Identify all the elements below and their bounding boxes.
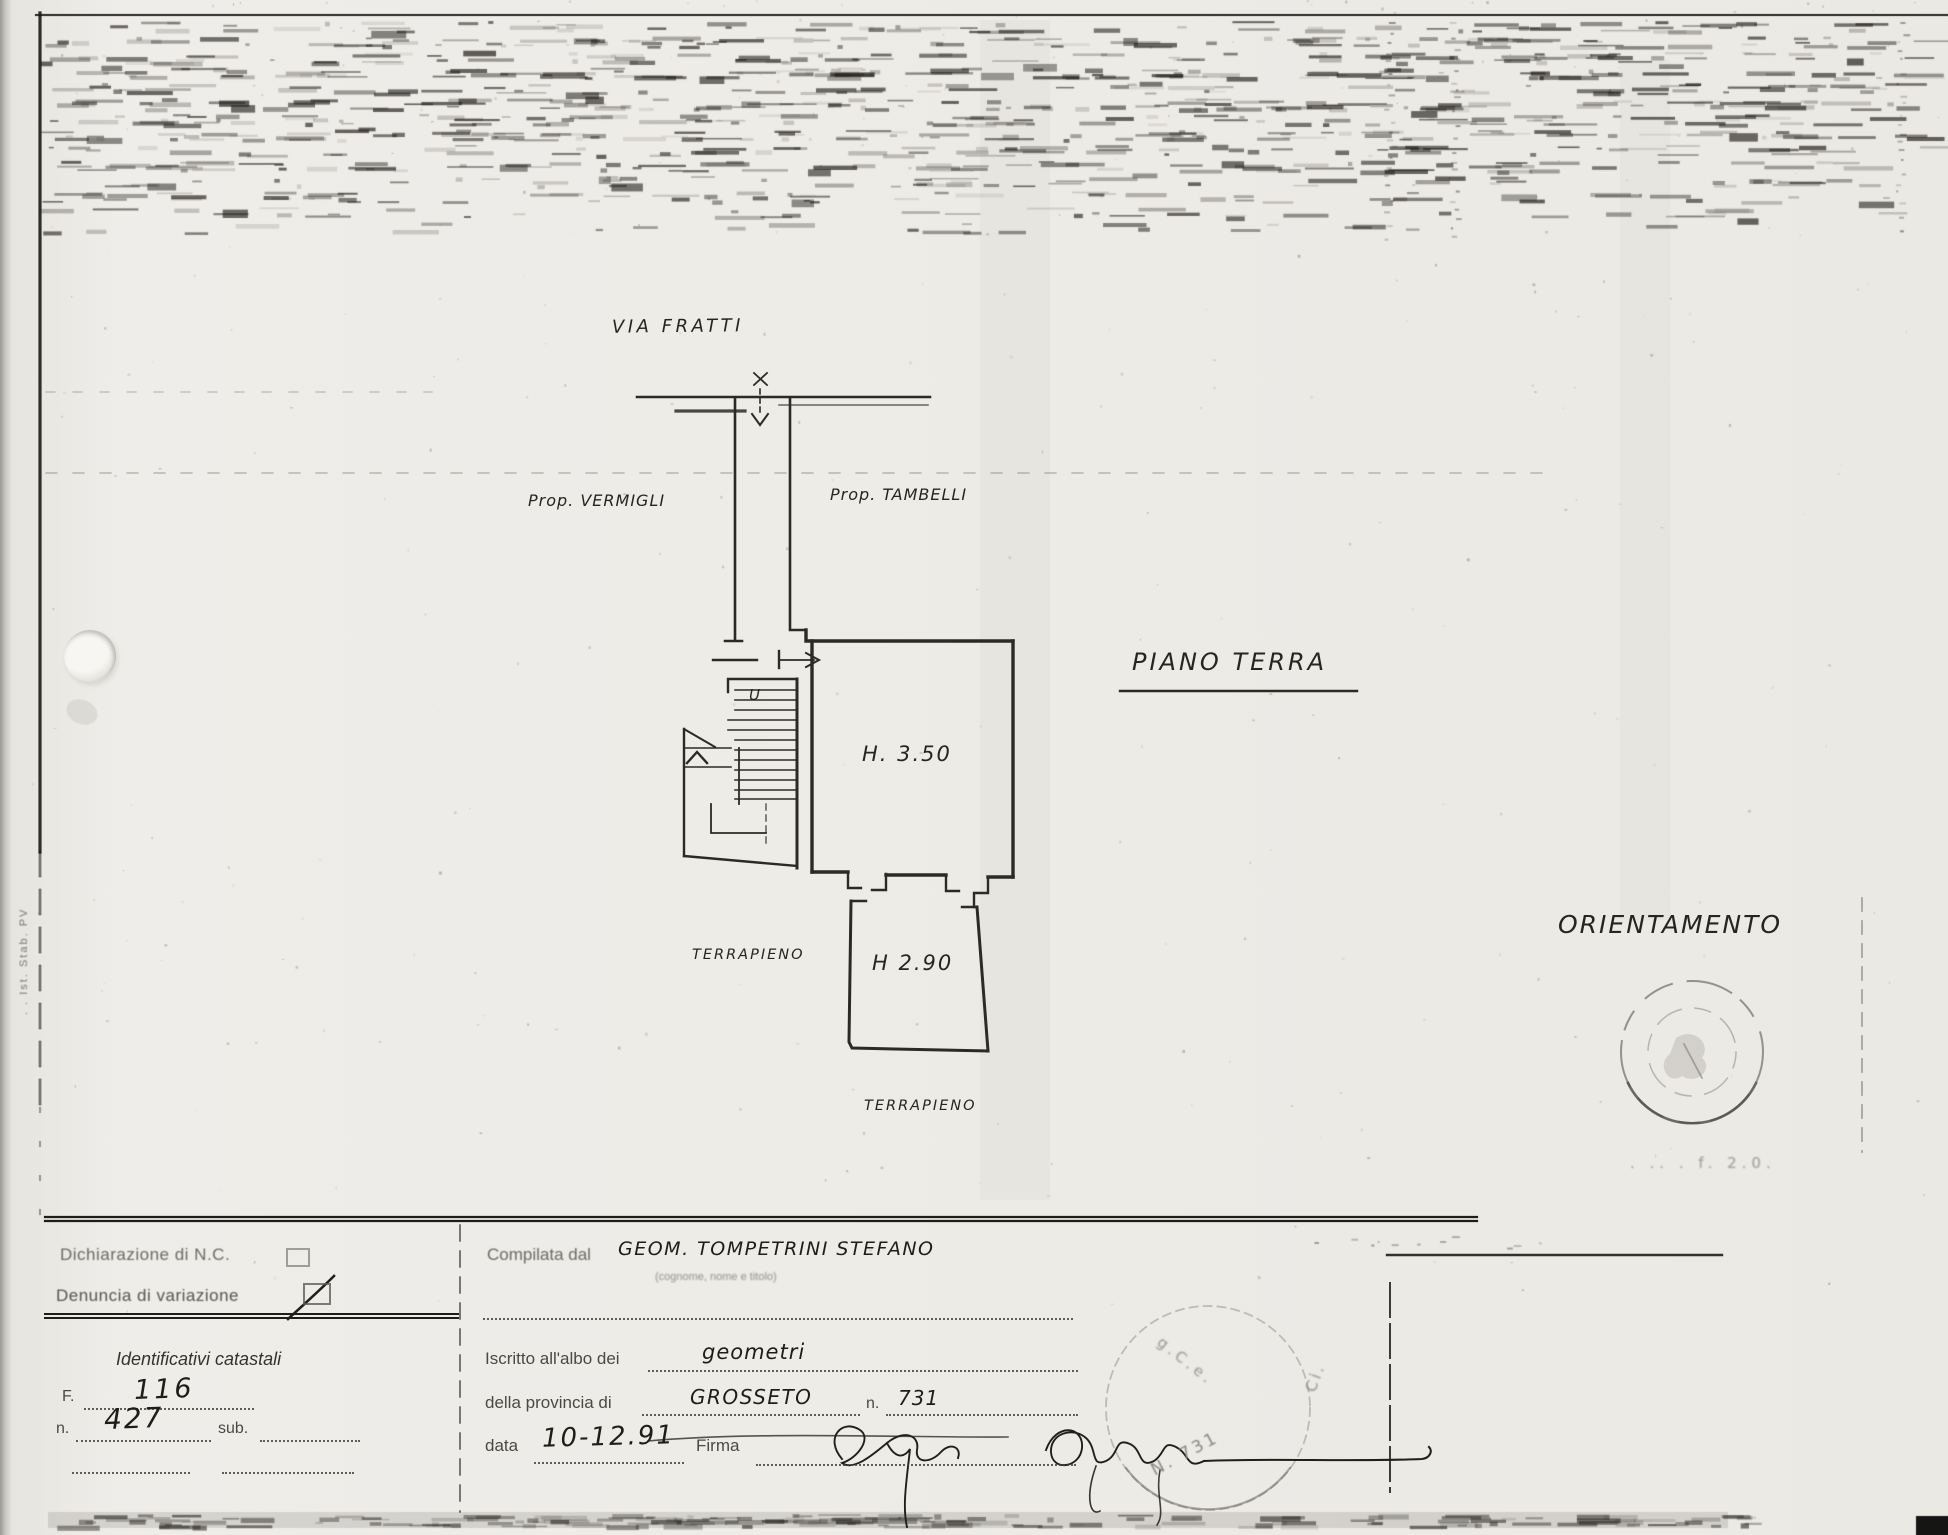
province-label: della provincia di	[485, 1393, 612, 1413]
lowerroom-right-wall	[977, 907, 988, 1051]
n-label: n.	[56, 1420, 69, 1438]
signature-scrawl-a	[835, 1426, 910, 1527]
scanned-cadastral-sheet: VIA FRATTI Prop. VERMIGLI Prop. TAMBELLI…	[0, 0, 1948, 1535]
round-stamp	[1106, 1306, 1310, 1510]
sign-label: Firma	[696, 1436, 739, 1456]
prop-right-label: Prop. TAMBELLI	[830, 485, 967, 504]
door-jamb-left-inner	[872, 874, 886, 890]
floor-title: PIANO TERRA	[1132, 648, 1327, 676]
room-top-wall	[806, 630, 1013, 641]
declaration-checkbox	[286, 1248, 310, 1267]
n-value: 427	[103, 1401, 164, 1436]
form-left-inner-rule	[45, 1314, 458, 1318]
door-jamb-right-outer	[974, 877, 988, 907]
spare-dotted-line-a	[72, 1454, 190, 1474]
signature-descender-a	[1090, 1466, 1100, 1512]
variation-checkbox	[303, 1283, 331, 1305]
sub-label: sub.	[218, 1420, 248, 1438]
compiled-value: GEOM. TOMPETRINI STEFANO	[618, 1238, 935, 1260]
understair-caret	[687, 752, 707, 763]
date-value: 10-12.91	[542, 1420, 676, 1453]
identifiers-title: Identificativi catastali	[116, 1349, 281, 1370]
entrance-arrowhead	[752, 414, 768, 425]
lowerroom-left-bottom-wall	[849, 901, 988, 1051]
compass-bottom-arc	[1628, 1083, 1756, 1123]
middle-dotted-separator	[483, 1300, 1073, 1320]
f-label: F.	[62, 1388, 74, 1406]
orientation-title: ORIENTAMENTO	[1558, 910, 1782, 939]
date-label: data	[485, 1436, 518, 1456]
street-name-label: VIA FRATTI	[612, 315, 744, 337]
province-value: GROSSETO	[690, 1385, 812, 1409]
sub-dotted-line	[260, 1422, 360, 1442]
margin-note: . . Ist. Stab. PV	[18, 908, 30, 1015]
variation-label: Denuncia di variazione	[56, 1286, 239, 1306]
height-main-label: H. 3.50	[862, 742, 952, 766]
register-label: Iscritto all'albo dei	[485, 1349, 620, 1369]
province-number-value: 731	[898, 1386, 939, 1410]
form-separator-top	[45, 1217, 1477, 1221]
understair-bottom-wall	[684, 856, 797, 866]
terrain-bottom-label: TERRAPIENO	[864, 1098, 977, 1114]
compass-rose	[1621, 981, 1763, 1123]
understair-diagonal	[684, 729, 715, 747]
compiled-label: Compilata dal	[487, 1245, 591, 1265]
compiled-hint: (cognome, nome e titolo)	[655, 1271, 777, 1283]
entrance-x-marker	[754, 373, 767, 385]
province-number-label: n.	[866, 1395, 879, 1413]
stair-landing-box	[711, 804, 766, 833]
faint-scale-note: . .. . f. 2.0.	[1630, 1154, 1776, 1172]
prop-left-label: Prop. VERMIGLI	[528, 491, 665, 510]
height-lower-label: H 2.90	[872, 951, 953, 975]
spare-dotted-line-b	[222, 1454, 354, 1474]
door-jamb-right-inner	[946, 875, 959, 891]
register-value: geometri	[702, 1340, 805, 1364]
door-jamb-left-outer	[848, 872, 861, 888]
sign-dotted-line	[756, 1446, 1076, 1466]
terrain-left-label: TERRAPIENO	[692, 947, 805, 963]
declaration-label: Dichiarazione di N.C.	[60, 1245, 230, 1265]
corridor-right-wall	[790, 398, 806, 630]
corridor-left-wall	[725, 398, 742, 641]
stamp-bottom-arc	[1126, 1468, 1290, 1509]
stair-direction-mark: U	[749, 686, 760, 704]
signature-tail	[1204, 1447, 1431, 1461]
